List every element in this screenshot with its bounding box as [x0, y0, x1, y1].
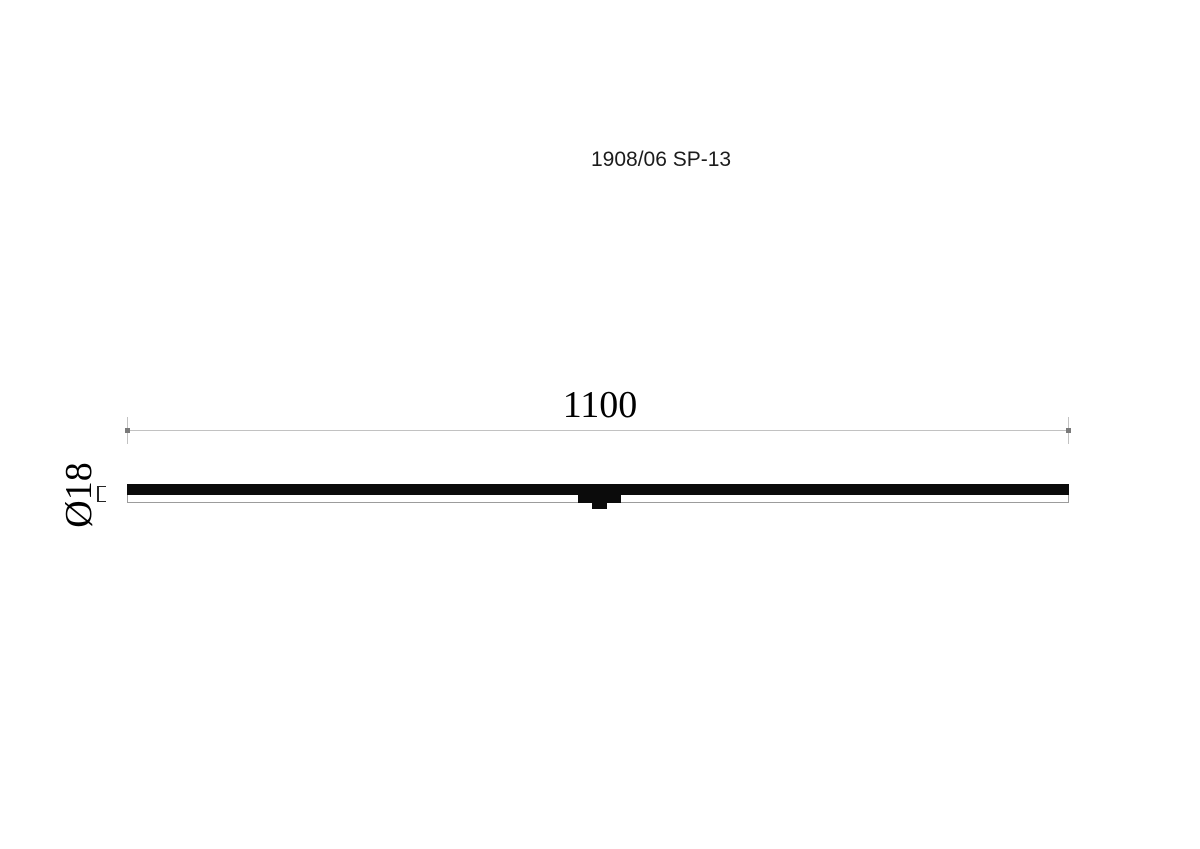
center-mount-block — [578, 490, 621, 503]
dimension-tick-left — [125, 428, 130, 433]
length-dimension-label: 1100 — [510, 386, 690, 424]
diameter-extent-tick-top — [97, 486, 106, 488]
dimension-tick-right — [1066, 428, 1071, 433]
diameter-dimension-label: Ø18 — [60, 456, 98, 534]
center-mount-tab — [592, 503, 607, 509]
technical-drawing-page: 1908/06 SP-13 1100 Ø18 — [0, 0, 1200, 849]
drawing-title: 1908/06 SP-13 — [591, 148, 731, 172]
diameter-extent-tick-bottom — [97, 501, 106, 503]
length-dimension-line — [128, 430, 1068, 431]
